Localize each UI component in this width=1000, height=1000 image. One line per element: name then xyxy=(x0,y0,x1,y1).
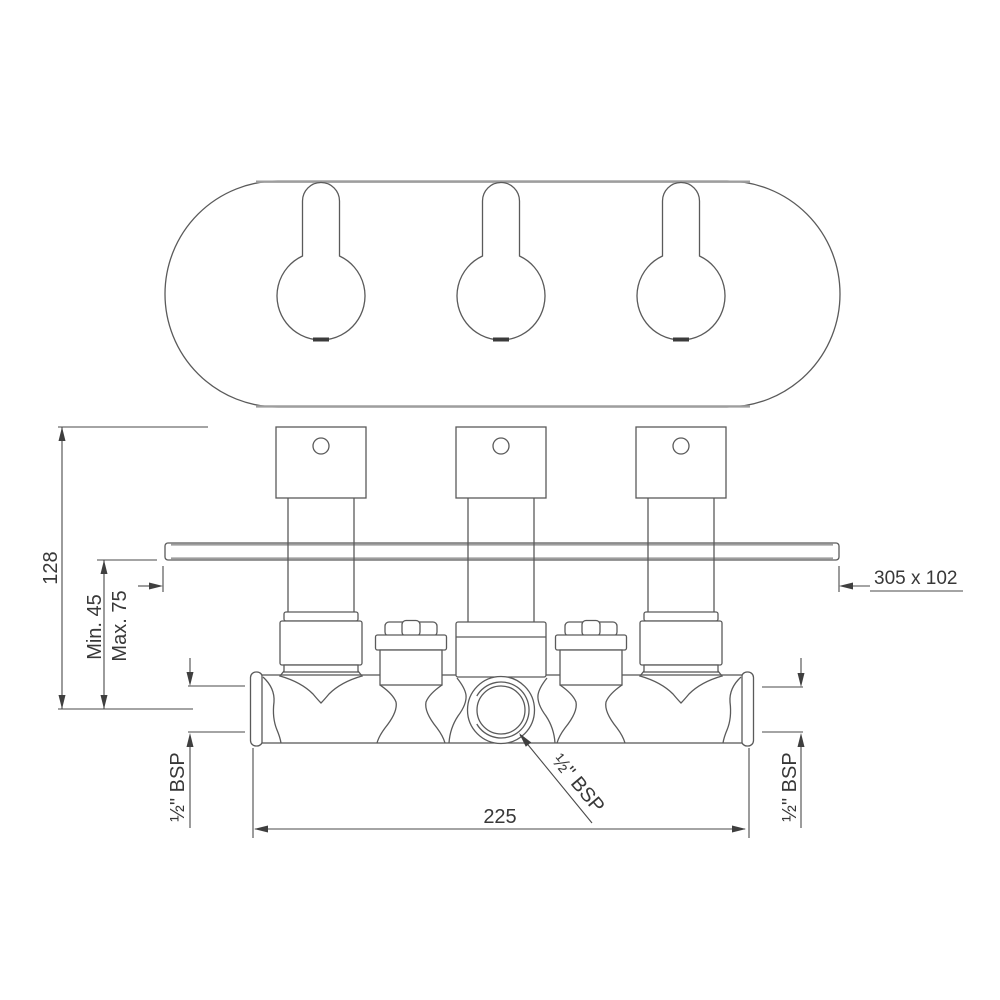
drawing-canvas: 128 Min. 45 Max. 75 305 x 102 xyxy=(0,0,1000,1000)
wall-plate xyxy=(165,543,839,560)
bonnet-block xyxy=(640,621,722,665)
arrowhead-icon xyxy=(101,695,108,709)
hex-nut-face xyxy=(402,621,420,637)
arrowhead-icon xyxy=(839,583,853,590)
valve-bonnet-1 xyxy=(280,612,362,672)
arrowhead-icon xyxy=(798,733,805,747)
arrowhead-icon xyxy=(732,826,746,833)
arrowhead-icon xyxy=(59,695,66,709)
arrowhead-icon xyxy=(59,427,66,441)
nut-flange xyxy=(556,635,627,650)
arrowhead-icon xyxy=(187,672,194,686)
bsp-left-label: ½" BSP xyxy=(167,752,189,821)
bonnet-rim xyxy=(284,612,358,621)
bonnet-band xyxy=(644,665,718,672)
dim-bsp-outlet: ½" BSP xyxy=(519,733,609,823)
nut-flange xyxy=(376,635,447,650)
dim-bsp-right: ½" BSP xyxy=(762,658,805,828)
body-end-cap-left xyxy=(251,672,263,746)
hex-nut-2 xyxy=(556,621,627,686)
dim-centers-label: 225 xyxy=(483,806,516,828)
bsp-outlet-label: ½" BSP xyxy=(547,750,608,817)
faceplate-outline xyxy=(165,181,840,407)
dim-overall-height: 128 xyxy=(40,427,208,709)
dim-max-depth-label: Max. 75 xyxy=(109,590,131,661)
arrowhead-icon xyxy=(187,733,194,747)
arrowhead-icon xyxy=(149,583,163,590)
body-end-cap-right xyxy=(742,672,754,746)
bonnet-block xyxy=(280,621,362,665)
dim-min-depth-label: Min. 45 xyxy=(84,594,106,660)
dim-overall-height-label: 128 xyxy=(40,551,62,584)
plate-size-label: 305 x 102 xyxy=(874,568,957,589)
bonnet-band xyxy=(284,665,358,672)
arrowhead-icon xyxy=(798,673,805,687)
dim-plate-size: 305 x 102 xyxy=(138,566,963,592)
faceplate-top-view xyxy=(165,181,840,407)
dim-bsp-left: ½" BSP xyxy=(167,658,245,828)
nut-block xyxy=(380,650,442,685)
bsp-right-label: ½" BSP xyxy=(779,752,801,821)
hex-nut-face xyxy=(582,621,600,637)
nut-block xyxy=(560,650,622,685)
dim-min-max-depth: Min. 45 Max. 75 xyxy=(84,560,157,709)
arrowhead-icon xyxy=(254,826,268,833)
dim-inlet-centers: 225 xyxy=(253,748,749,838)
handle-squares xyxy=(276,427,726,498)
arrowhead-icon xyxy=(101,560,108,574)
bonnet-rim xyxy=(644,612,718,621)
valve-technical-drawing: 128 Min. 45 Max. 75 305 x 102 xyxy=(0,0,1000,1000)
valve-front-view xyxy=(165,427,839,746)
hex-nut-1 xyxy=(376,621,447,686)
valve-bonnet-3 xyxy=(640,612,722,672)
outlet-block xyxy=(456,622,546,677)
